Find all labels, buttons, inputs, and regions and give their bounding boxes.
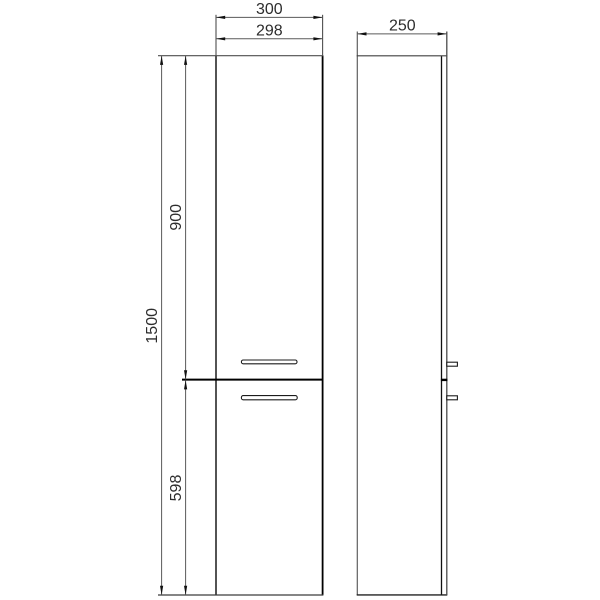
svg-text:298: 298 bbox=[256, 22, 283, 39]
svg-text:900: 900 bbox=[168, 204, 185, 231]
svg-text:1500: 1500 bbox=[144, 308, 161, 344]
svg-text:250: 250 bbox=[389, 18, 416, 35]
svg-text:598: 598 bbox=[168, 475, 185, 502]
svg-text:300: 300 bbox=[256, 1, 283, 18]
